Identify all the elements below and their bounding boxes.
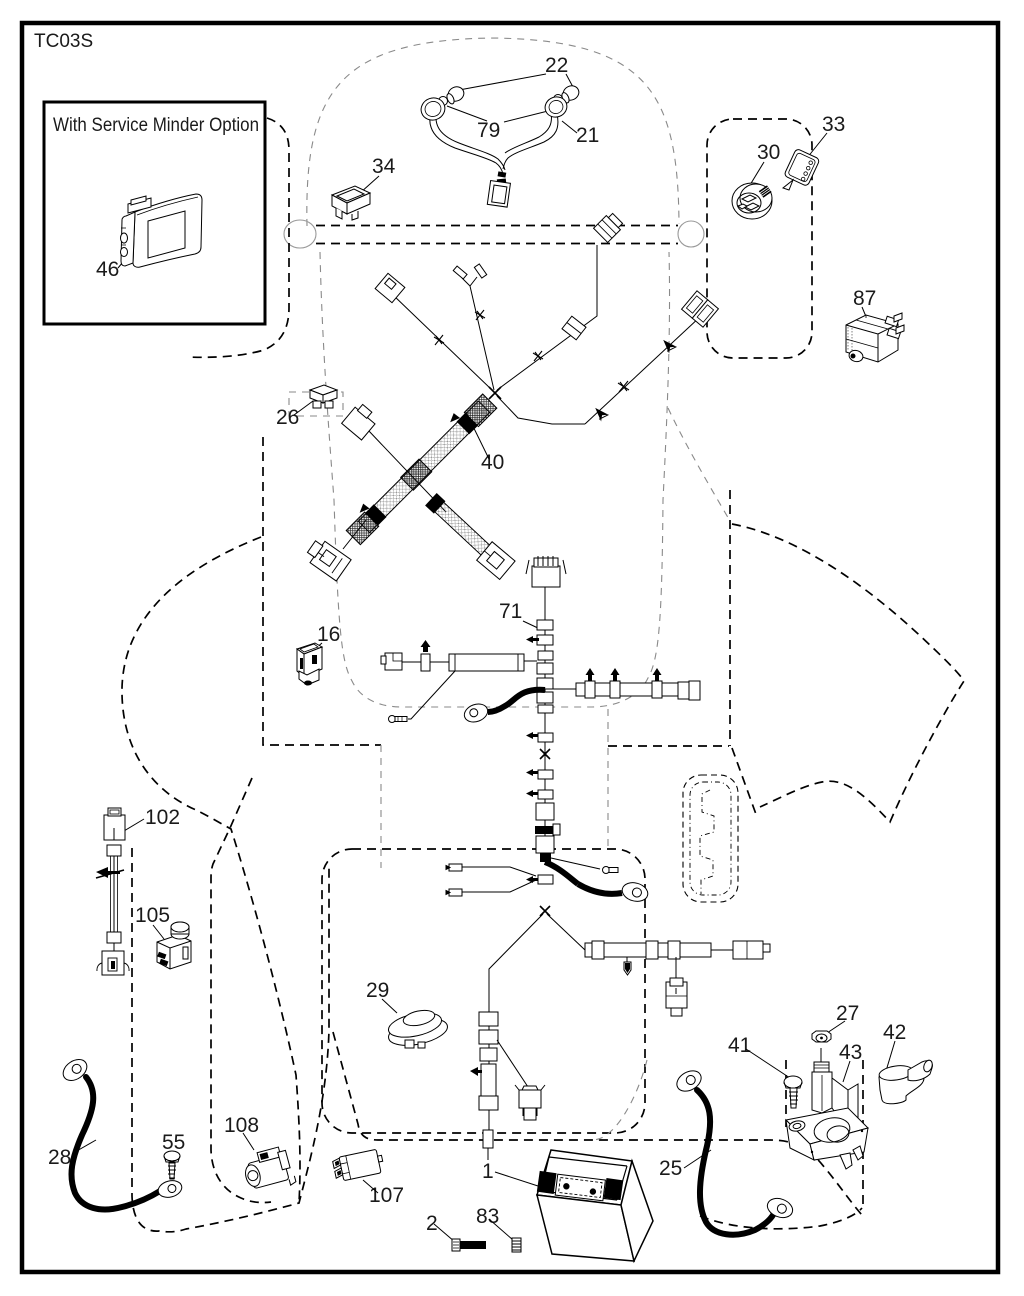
svg-text:21: 21 xyxy=(576,124,599,147)
svg-text:27: 27 xyxy=(836,1002,859,1025)
svg-text:29: 29 xyxy=(366,979,389,1002)
svg-text:102: 102 xyxy=(145,806,180,829)
svg-text:42: 42 xyxy=(883,1021,906,1044)
svg-text:16: 16 xyxy=(317,623,340,646)
svg-text:79: 79 xyxy=(477,119,500,142)
svg-text:With Service Minder Option: With Service Minder Option xyxy=(53,114,259,136)
svg-text:1: 1 xyxy=(482,1160,494,1183)
svg-text:2: 2 xyxy=(426,1212,438,1235)
svg-text:33: 33 xyxy=(822,113,845,136)
svg-text:28: 28 xyxy=(48,1146,71,1169)
svg-text:43: 43 xyxy=(839,1041,862,1064)
svg-text:55: 55 xyxy=(162,1131,185,1154)
svg-text:41: 41 xyxy=(728,1034,751,1057)
svg-text:105: 105 xyxy=(135,904,170,927)
svg-text:26: 26 xyxy=(276,406,299,429)
svg-text:22: 22 xyxy=(545,54,568,77)
svg-text:34: 34 xyxy=(372,155,396,178)
svg-text:40: 40 xyxy=(481,451,504,474)
svg-text:108: 108 xyxy=(224,1114,259,1137)
svg-text:25: 25 xyxy=(659,1157,682,1180)
svg-text:71: 71 xyxy=(499,600,522,623)
svg-text:TC03S: TC03S xyxy=(34,31,93,52)
svg-text:107: 107 xyxy=(369,1184,404,1207)
svg-text:30: 30 xyxy=(757,141,780,164)
svg-text:87: 87 xyxy=(853,287,876,310)
svg-text:46: 46 xyxy=(96,258,119,281)
